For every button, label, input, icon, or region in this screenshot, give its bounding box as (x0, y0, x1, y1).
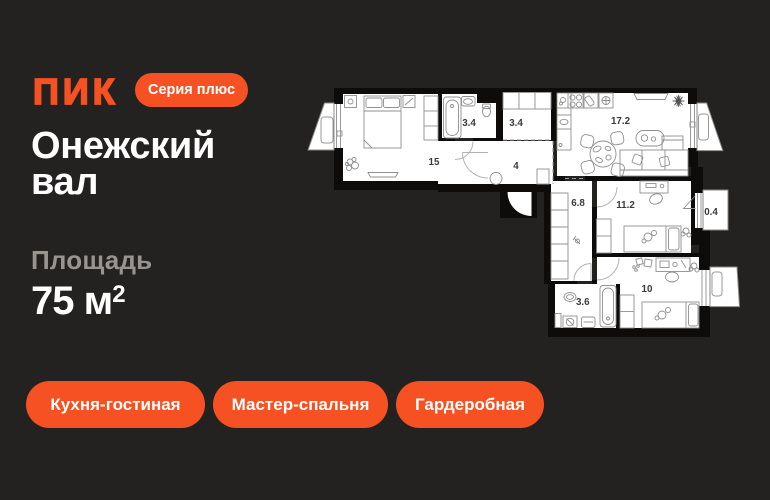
svg-text:0.4: 0.4 (704, 207, 718, 218)
svg-text:10: 10 (642, 284, 653, 295)
svg-text:3.4: 3.4 (509, 118, 523, 129)
svg-text:4: 4 (513, 161, 519, 172)
svg-text:11.2: 11.2 (616, 200, 635, 211)
svg-text:3.4: 3.4 (462, 118, 476, 129)
svg-text:17.2: 17.2 (611, 116, 631, 127)
svg-text:15: 15 (429, 157, 440, 168)
svg-text:6.8: 6.8 (571, 198, 585, 209)
svg-text:3.6: 3.6 (576, 297, 590, 308)
